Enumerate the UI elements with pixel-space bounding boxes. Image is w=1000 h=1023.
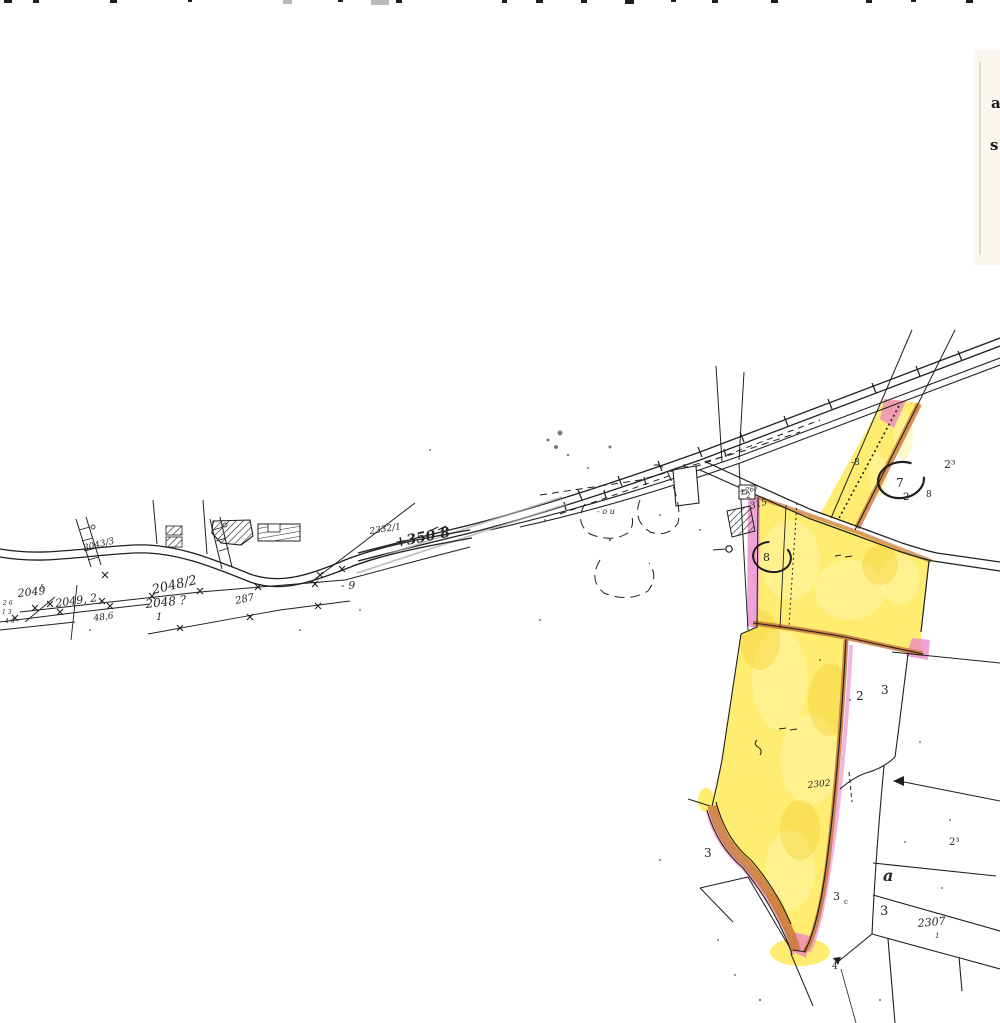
top-edge-mark: [502, 0, 507, 3]
map-label-mark-minus-8: -8: [851, 458, 860, 468]
open-building: [673, 466, 699, 506]
map-label-mark-minus-9: - 9: [341, 579, 355, 592]
cadastral-map-scan: 3043/3204952049, 22048/22048 ?128748,62 …: [0, 0, 1000, 1023]
map-label-micro-2-6: 2 6: [2, 600, 13, 607]
map-label-label-4-tip: 4: [832, 962, 838, 972]
top-edge-mark: [712, 0, 718, 3]
map-label-circled-8: 8: [763, 551, 770, 564]
top-edge-mark: [188, 0, 192, 2]
map-label-label-2-mid-parcel: 2: [856, 689, 864, 703]
top-edge-mark: [338, 0, 343, 2]
hatched-building-3b: [166, 537, 182, 547]
map-label-label-3-edge: 3: [833, 890, 840, 903]
map-label-label-3-edge-sub-c: c: [844, 898, 848, 906]
map-label-label-3-left-of-parcel: 3: [704, 846, 712, 860]
map-label-micro-1-3: 1 3: [2, 609, 12, 616]
map-label-label-3-lower: 3: [880, 904, 888, 919]
map-label-micro-4-6: 4 6: [4, 618, 15, 625]
map-label-parcel-2048-denominator: 1: [156, 612, 162, 623]
top-edge-mark: [581, 0, 587, 3]
map-label-marker-box-2: 2: [746, 492, 750, 500]
map-label-label-2-sup3-bottom: 2³: [949, 837, 959, 848]
map-label-micro-5: 5: [40, 584, 44, 591]
hatched-building-3a: [166, 526, 182, 535]
clipped-letter-a: a: [991, 94, 1000, 112]
top-edge-mark: [671, 0, 676, 2]
top-edge-mark: [4, 0, 12, 3]
top-edge-mark: [771, 0, 778, 3]
map-label-parcel-2307-sub-1: 1: [935, 932, 939, 940]
top-edge-mark: [911, 0, 916, 2]
map-label-label-a: a: [883, 866, 893, 885]
top-edge-mark: [966, 0, 973, 3]
top-edge-mark: [33, 0, 39, 3]
clipped-letter-s: s: [990, 136, 998, 154]
top-edge-mark: [625, 0, 634, 4]
map-canvas: 3043/3204952049, 22048/22048 ?128748,62 …: [0, 0, 1000, 1023]
map-label-label-2-sup3-top: 2³: [944, 458, 955, 471]
top-edge-mark: [110, 0, 117, 3]
map-label-label-8-right-of-strip: 8: [926, 490, 932, 500]
map-label-circled-7: 7: [896, 476, 904, 490]
top-edge-mark: [283, 0, 292, 4]
map-label-label-3-mid-parcel: 3: [881, 683, 889, 697]
top-edge-mark: [371, 0, 389, 5]
top-edge-mark: [536, 0, 543, 3]
map-label-parcel-2307: 2307: [916, 915, 946, 930]
map-label-mark-o-u: - o u: [597, 507, 615, 516]
map-label-label-2-under-ellipse: 2: [903, 492, 909, 503]
scan-edge-shadow: [974, 50, 1000, 265]
top-edge-mark: [396, 0, 402, 3]
top-edge-mark: [866, 0, 872, 3]
